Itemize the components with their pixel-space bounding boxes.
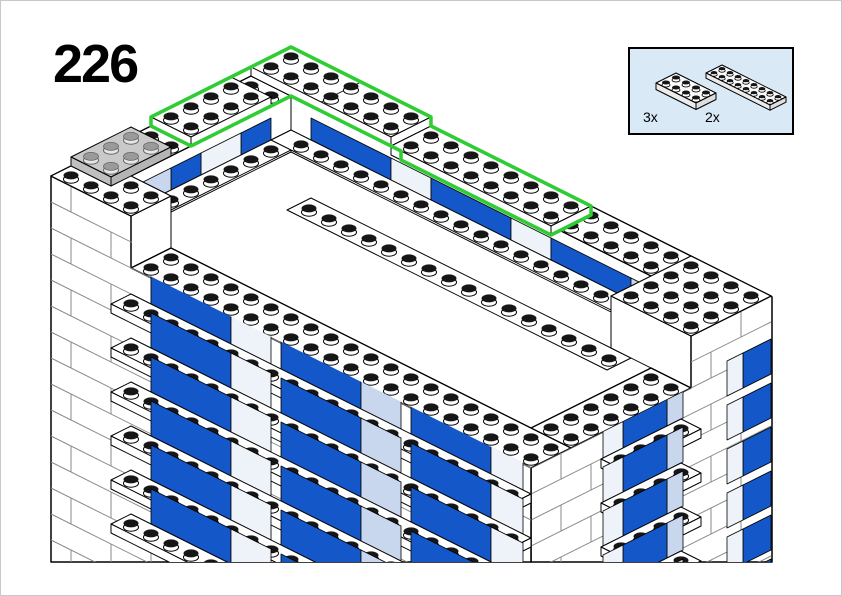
- part-count-plate-2x8: 2x: [705, 110, 720, 124]
- left-facade: [51, 176, 531, 596]
- parts-callout: 3x 2x: [628, 47, 794, 135]
- step-number: 226: [53, 37, 137, 91]
- instruction-page: 226 3x 2x: [0, 0, 842, 596]
- plate-2x8-icon: [706, 65, 786, 110]
- part-count-plate-2x4: 3x: [643, 110, 658, 124]
